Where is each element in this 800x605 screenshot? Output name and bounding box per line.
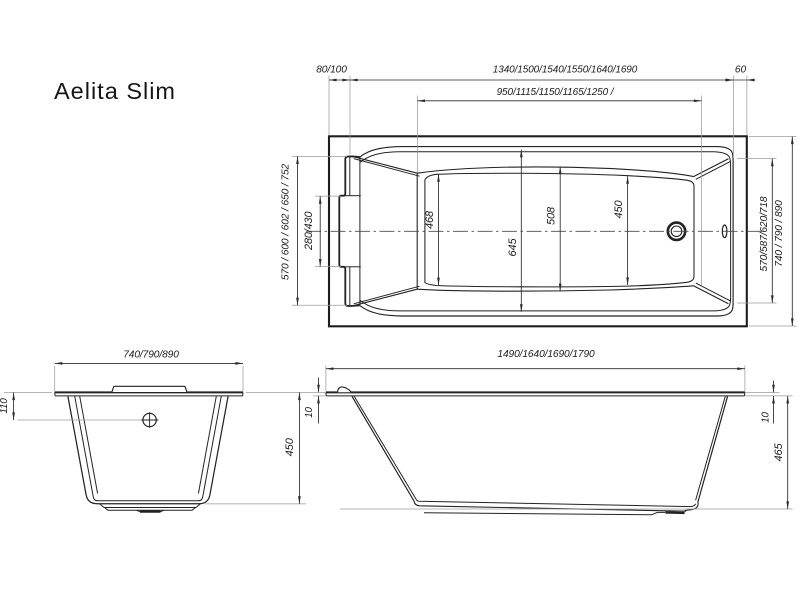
- svg-text:60: 60: [735, 65, 747, 76]
- svg-text:110: 110: [0, 398, 10, 414]
- svg-text:570 / 600 / 602 / 650 / 752: 570 / 600 / 602 / 650 / 752: [281, 163, 292, 280]
- svg-text:950/1115/1150/1165/1250 /: 950/1115/1150/1165/1250 /: [497, 87, 615, 98]
- svg-text:280/430: 280/430: [303, 212, 315, 251]
- svg-text:80/100: 80/100: [316, 65, 347, 76]
- svg-text:740/790/890: 740/790/890: [123, 349, 179, 360]
- svg-text:1490/1640/1690/1790: 1490/1640/1690/1790: [497, 349, 595, 360]
- svg-text:465: 465: [773, 442, 785, 461]
- svg-text:Aelita Slim: Aelita Slim: [54, 78, 176, 104]
- svg-text:10: 10: [304, 407, 315, 418]
- svg-text:1340/1500/1540/1550/1640/1690: 1340/1500/1540/1550/1640/1690: [493, 65, 638, 76]
- svg-text:570/587/620/718: 570/587/620/718: [759, 196, 770, 271]
- svg-text:508: 508: [546, 206, 558, 225]
- svg-text:468: 468: [424, 210, 436, 229]
- svg-text:645: 645: [507, 237, 519, 256]
- svg-text:740 / 790 / 890: 740 / 790 / 890: [774, 200, 785, 267]
- svg-text:450: 450: [613, 199, 625, 218]
- svg-text:10: 10: [760, 412, 771, 423]
- svg-text:450: 450: [284, 437, 296, 456]
